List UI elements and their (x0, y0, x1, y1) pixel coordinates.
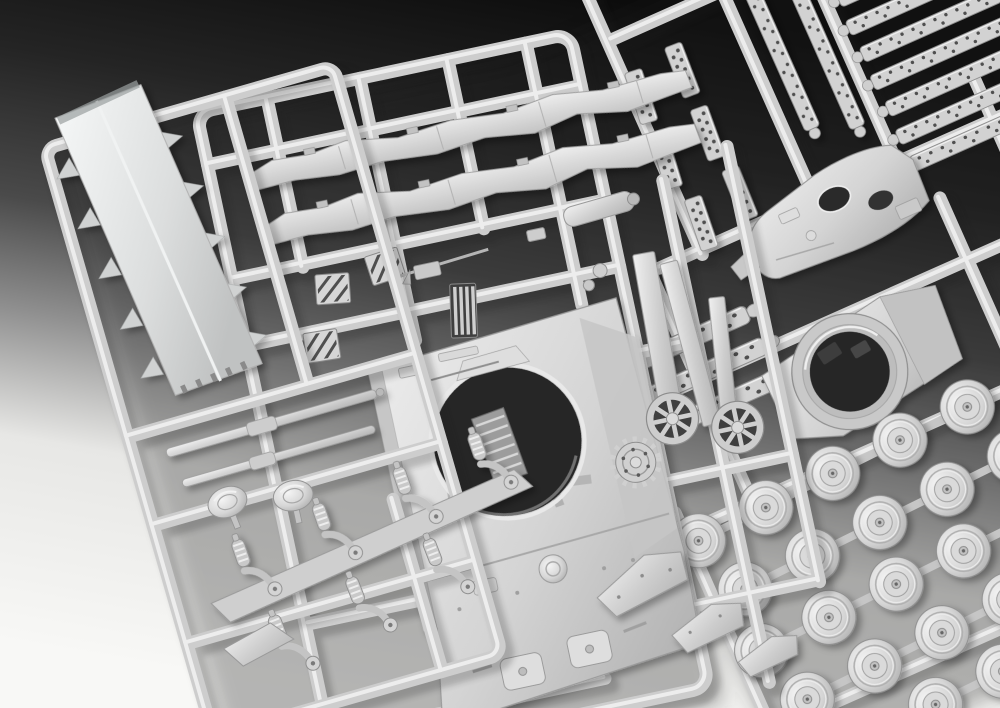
model-kit-photo (0, 0, 1000, 708)
kit-photo-svg (0, 0, 1000, 708)
slat-grille-part (450, 283, 478, 338)
